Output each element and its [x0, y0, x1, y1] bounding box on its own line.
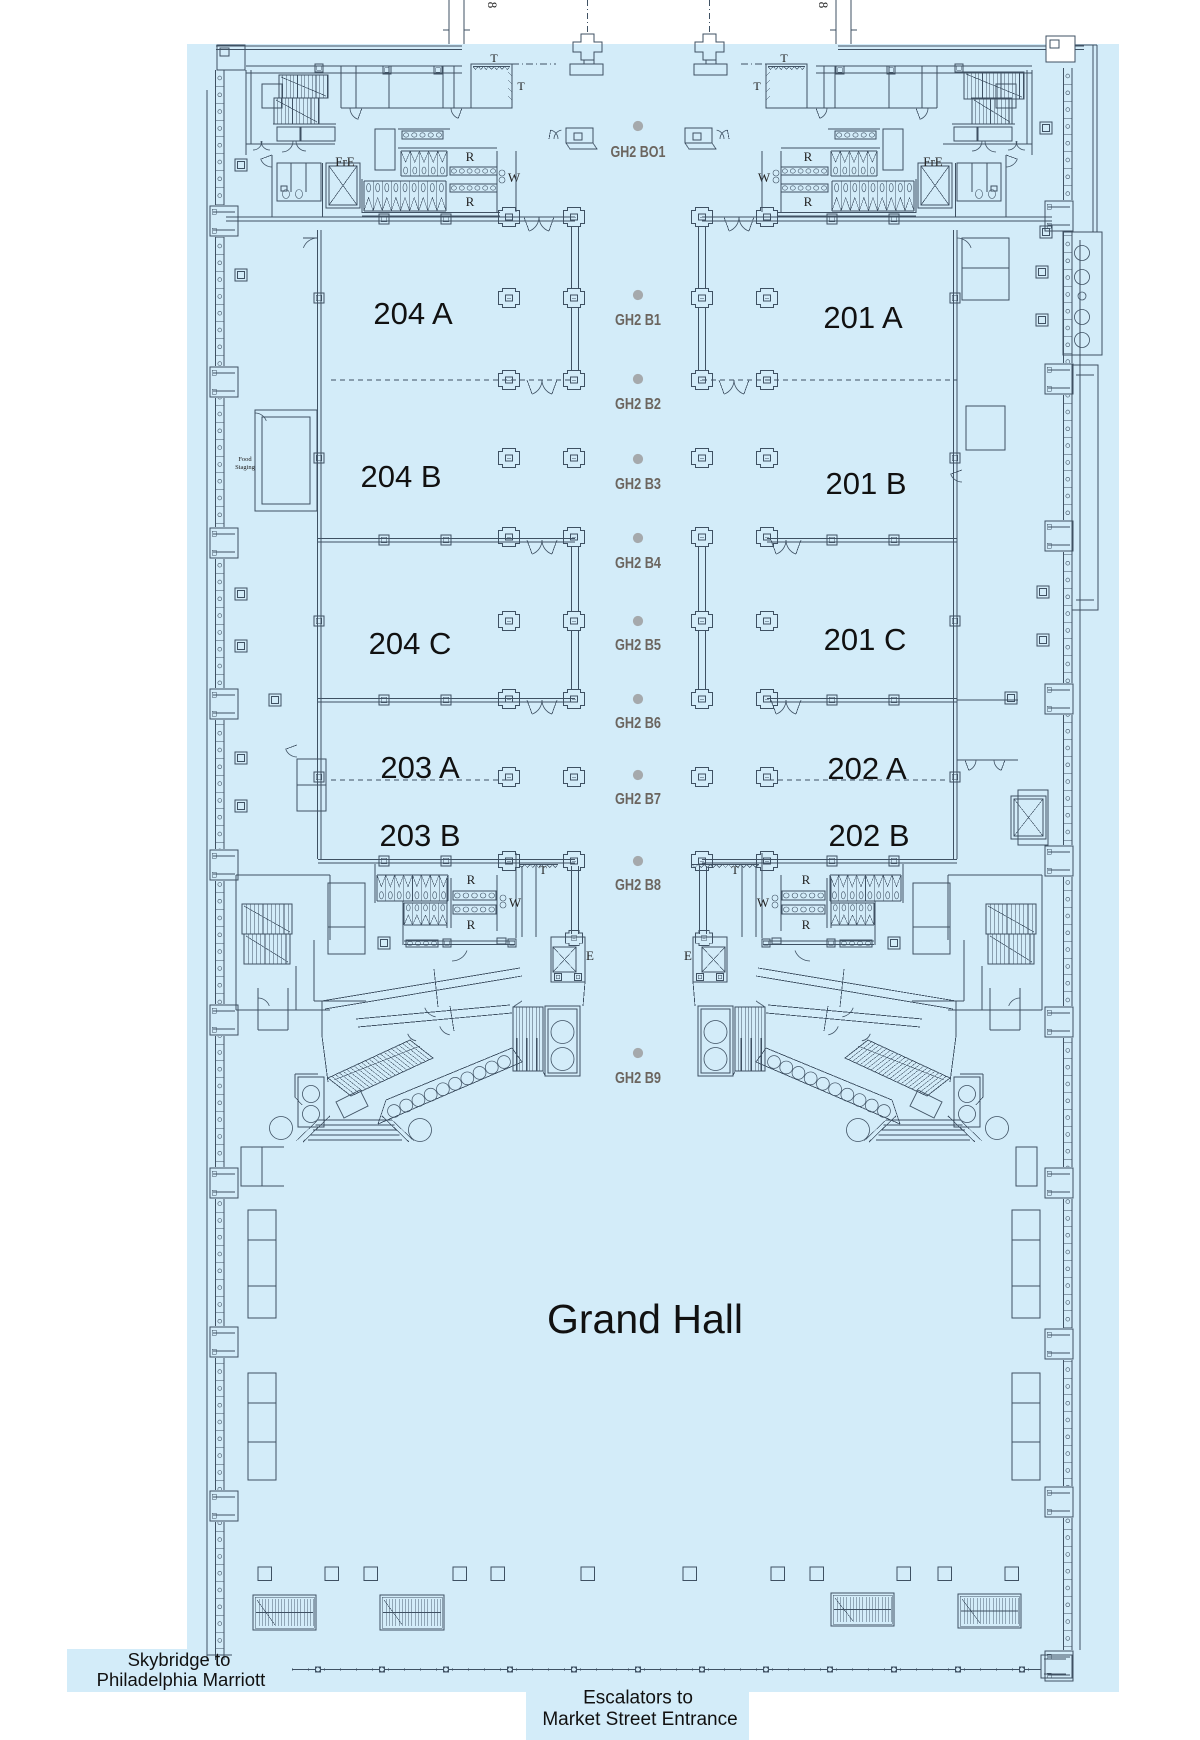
svg-text:203 A: 203 A	[380, 750, 460, 785]
svg-text:Grand Hall: Grand Hall	[547, 1296, 743, 1342]
svg-text:Food: Food	[238, 456, 252, 463]
svg-text:GH2 B7: GH2 B7	[615, 791, 661, 808]
svg-text:8: 8	[485, 2, 500, 9]
svg-text:R: R	[804, 194, 813, 209]
svg-text:Market Street Entrance: Market Street Entrance	[542, 1709, 737, 1730]
svg-text:GH2 B2: GH2 B2	[615, 396, 661, 413]
svg-text:202 A: 202 A	[827, 751, 907, 786]
svg-text:Skybridge to: Skybridge to	[128, 1649, 231, 1670]
svg-text:GH2 B4: GH2 B4	[615, 555, 661, 572]
svg-text:FrE: FrE	[335, 154, 355, 169]
svg-text:GH2 B6: GH2 B6	[615, 715, 661, 732]
svg-text:203 B: 203 B	[379, 818, 460, 853]
svg-text:W: W	[508, 170, 521, 185]
svg-text:Escalators to: Escalators to	[583, 1688, 693, 1709]
svg-text:R: R	[466, 149, 475, 164]
svg-text:GH2 B8: GH2 B8	[615, 877, 661, 894]
svg-text:R: R	[467, 917, 476, 932]
svg-text:Staging: Staging	[235, 464, 256, 471]
svg-text:GH2 B1: GH2 B1	[615, 312, 661, 329]
svg-text:T: T	[753, 79, 761, 93]
svg-text:GH2 B3: GH2 B3	[615, 476, 661, 493]
svg-text:202 B: 202 B	[828, 818, 909, 853]
svg-text:E: E	[684, 948, 692, 963]
svg-text:R: R	[466, 194, 475, 209]
svg-text:201 A: 201 A	[823, 300, 903, 335]
svg-text:R: R	[467, 872, 476, 887]
svg-text:T: T	[539, 863, 547, 877]
svg-text:GH2 B5: GH2 B5	[615, 637, 661, 654]
svg-text:W: W	[757, 895, 770, 910]
svg-text:204 B: 204 B	[360, 459, 441, 494]
svg-text:R: R	[802, 872, 811, 887]
svg-text:Philadelphia Marriott: Philadelphia Marriott	[97, 1669, 266, 1690]
svg-text:W: W	[509, 895, 522, 910]
svg-text:201 B: 201 B	[825, 466, 906, 501]
svg-text:T: T	[780, 51, 788, 65]
svg-text:T: T	[490, 51, 498, 65]
svg-text:R: R	[804, 149, 813, 164]
svg-text:T: T	[731, 863, 739, 877]
svg-text:8: 8	[816, 2, 831, 9]
svg-text:FrE: FrE	[923, 154, 943, 169]
svg-text:204 C: 204 C	[369, 626, 452, 661]
svg-text:T: T	[517, 79, 525, 93]
svg-text:201 C: 201 C	[824, 622, 907, 657]
svg-text:E: E	[586, 948, 594, 963]
svg-text:GH2 BO1: GH2 BO1	[611, 144, 666, 161]
svg-text:W: W	[758, 170, 771, 185]
svg-text:GH2 B9: GH2 B9	[615, 1070, 661, 1087]
svg-text:204 A: 204 A	[373, 296, 453, 331]
svg-text:R: R	[802, 917, 811, 932]
